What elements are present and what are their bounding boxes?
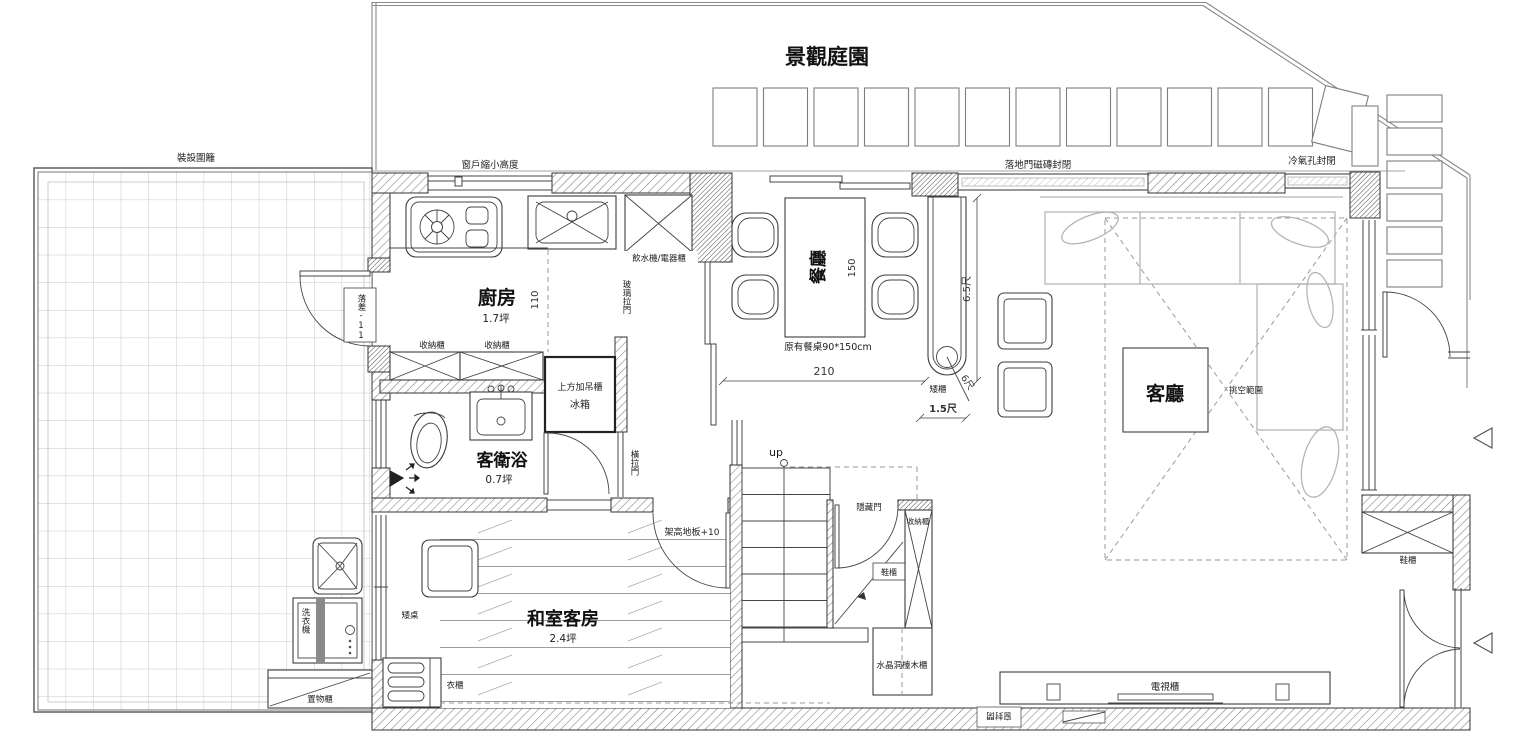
wall-niche: [1063, 711, 1105, 723]
raised-floor-note: 架高地板+10: [665, 526, 720, 538]
kitchen-storage-cabinets: 收納櫃 收納櫃: [390, 340, 543, 380]
side-tables: [998, 293, 1052, 417]
kitchen-sink: [528, 196, 616, 249]
upper-cabinet-label: 上方加吊櫃: [557, 381, 602, 393]
garden-gate: [1383, 292, 1470, 358]
room-living: 客廳 挑空範圍 電視櫃 窗封閉: [977, 197, 1347, 727]
room-dining: 餐廳 150 原有餐桌90*150cm 210 矮櫃 6尺 6.5尺 1.5尺: [719, 194, 981, 422]
svg-text:窗封閉: 窗封閉: [986, 710, 1012, 721]
patio-sliding-door: [770, 176, 910, 189]
appliance-cabinet: 飲水機/電器櫃: [620, 195, 698, 264]
wardrobe: [383, 658, 441, 707]
bathroom-area: 0.7坪: [485, 473, 513, 486]
fridge: 上方加吊櫃 冰箱: [545, 357, 615, 432]
ac-hole-sealed-note: 冷氣孔封閉: [1288, 155, 1336, 167]
washer-label: 洗衣機: [300, 607, 310, 634]
bath-window: [376, 400, 386, 468]
appliance-cabinet-label: 飲水機/電器櫃: [632, 253, 686, 264]
bath-door-sill: [547, 500, 611, 510]
kitchen-name: 廚房: [478, 286, 516, 309]
svg-text:鞋櫃: 鞋櫃: [881, 567, 897, 577]
bathroom-name: 客衛浴: [476, 450, 529, 471]
entry-marker-lower: [1474, 633, 1492, 653]
dim-210: 210: [814, 365, 835, 378]
level-diff-label: 落差-11: [356, 293, 366, 341]
living-name: 客廳: [1146, 382, 1184, 405]
svg-text:鞋櫃: 鞋櫃: [1399, 555, 1417, 566]
glass-sliding-door: [705, 262, 716, 425]
low-cabinet-label: 矮櫃: [929, 384, 947, 395]
stair-nook: 隱藏門 鞋櫃 收納櫃 水晶洞檯木櫃: [827, 500, 932, 695]
sealed-window-note: 窗封閉: [977, 707, 1021, 727]
bath-pocket-door: [618, 432, 623, 497]
entry-shoe-cabinet: 鞋櫃: [1362, 512, 1453, 566]
tv-cabinet-label: 電視櫃: [1151, 681, 1180, 693]
bathroom-door: [544, 433, 609, 494]
patio: 裝設圍籬 洗衣機 置物櫃: [34, 152, 372, 712]
kitchen-window: [428, 176, 552, 190]
hidden-door: [835, 505, 898, 568]
lounge-chair: [1295, 423, 1345, 501]
glass-door-label: 玻璃拉門: [621, 279, 631, 315]
fridge-label: 冰箱: [570, 398, 590, 411]
dim-65-line: [973, 194, 981, 385]
shower-head: [390, 464, 419, 493]
crystal-cabinet: 水晶洞檯木櫃: [873, 628, 932, 695]
garden-title: 景觀庭園: [785, 45, 869, 69]
dining-name: 餐廳: [808, 250, 829, 284]
slide-door-label: 橫拉門: [629, 449, 639, 476]
floor-plan-canvas: 景觀庭園 裝設圍籬 洗衣機 置物櫃: [0, 0, 1523, 740]
low-table-label: 矮桌: [401, 610, 419, 621]
svg-text:水晶洞檯木櫃: 水晶洞檯木櫃: [876, 660, 928, 671]
dim-15: 1.5尺: [929, 403, 957, 415]
fence-label: 裝設圍籬: [177, 152, 216, 164]
wall-annotations: 窗戶縮小高度 落地門磁磚封閉 冷氣孔封閉: [461, 155, 1335, 171]
floor-plan: 景觀庭園 裝設圍籬 洗衣機 置物櫃: [0, 0, 1523, 740]
kitchen-area: 1.7坪: [482, 312, 510, 325]
tatami-window: [374, 515, 388, 660]
toilet: [407, 410, 450, 470]
dim-65: 6.5尺: [961, 276, 973, 302]
patio-door-sealed-note: 落地門磁磚封閉: [1005, 159, 1072, 171]
dim-210-line: [719, 377, 929, 385]
window-height-note: 窗戶縮小高度: [461, 159, 519, 171]
stair-window: [732, 420, 742, 465]
storage-b-label: 收納櫃: [484, 340, 510, 351]
svg-text:收納櫃: 收納櫃: [907, 516, 930, 526]
under-stair-shoe-cabinet: 鞋櫃: [835, 542, 905, 624]
dim-150: 150: [847, 258, 858, 277]
low-table: [422, 540, 478, 597]
washing-machine: 洗衣機: [293, 598, 362, 663]
dim-6: 6尺: [958, 373, 976, 392]
stair-up-label: up: [769, 446, 783, 459]
living-windows: [1361, 220, 1377, 490]
hidden-door-label: 隱藏門: [856, 502, 882, 513]
entry-double-door: [1400, 590, 1460, 707]
tatami-area: 2.4坪: [549, 632, 577, 645]
dim-15-line: [916, 414, 970, 422]
table-note: 原有餐桌90*150cm: [784, 341, 871, 353]
entry-marker-upper: [1474, 428, 1492, 448]
storage-a-label: 收納櫃: [419, 340, 445, 351]
stair-storage-cabinet: 收納櫃: [905, 510, 932, 628]
shelf-label: 置物櫃: [307, 694, 333, 705]
shelf-cabinet: 置物櫃: [268, 670, 372, 708]
dim-110: 110: [530, 290, 541, 309]
bath-sink: [470, 385, 532, 440]
wardrobe-label: 衣櫃: [446, 680, 464, 691]
tatami-name: 和室客房: [527, 608, 599, 630]
void-label: 挑空範圍: [1229, 385, 1263, 396]
tv-cabinet: 電視櫃: [1000, 672, 1330, 704]
outdoor-sink: [313, 538, 362, 594]
